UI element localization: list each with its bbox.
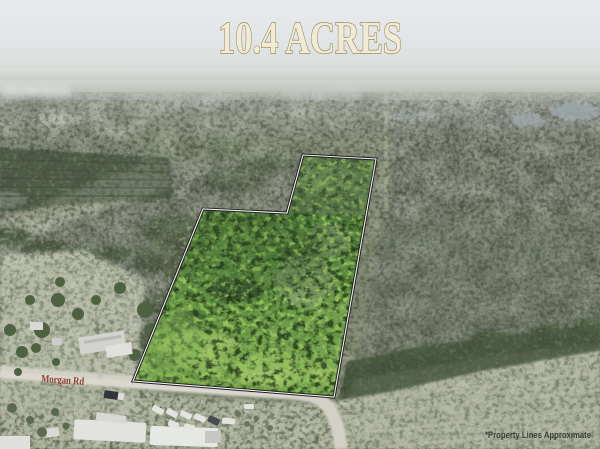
svg-text:10.4 ACRES: 10.4 ACRES	[218, 12, 402, 63]
svg-text:*Property Lines Approximate: *Property Lines Approximate	[485, 430, 591, 440]
